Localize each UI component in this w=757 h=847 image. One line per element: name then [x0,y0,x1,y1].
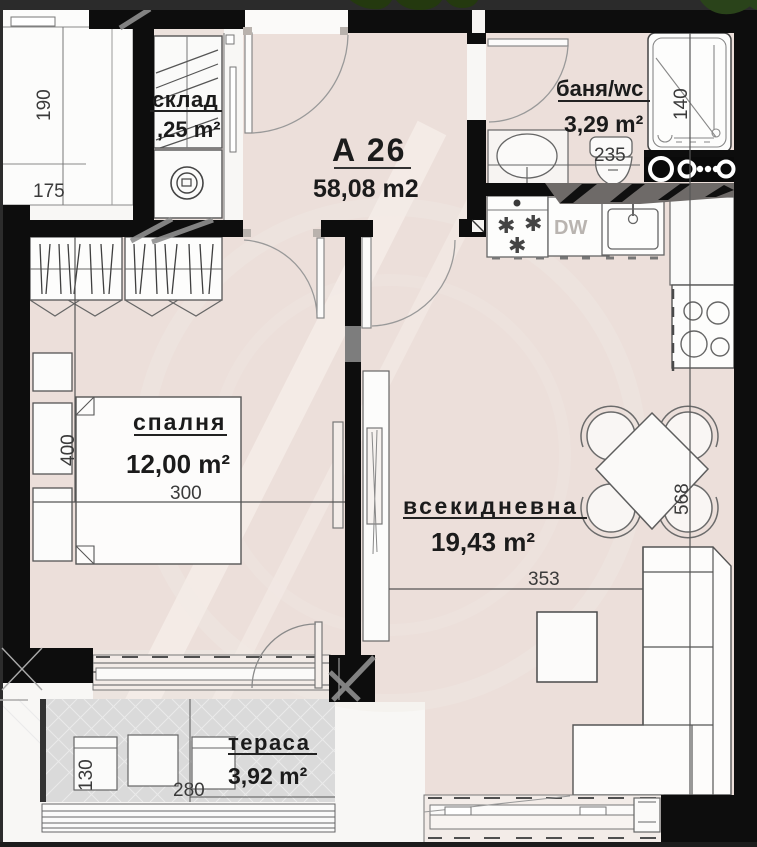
svg-text:3,92 m²: 3,92 m² [228,763,308,789]
svg-text:58,08 m2: 58,08 m2 [313,175,419,203]
svg-text:,25 m²: ,25 m² [157,117,221,142]
svg-text:баня/wc: баня/wc [556,76,643,101]
svg-text:склад: склад [152,87,218,112]
svg-text:235: 235 [594,145,626,166]
svg-text:175: 175 [33,181,65,202]
svg-text:тераса: тераса [228,730,310,755]
svg-text:3,29 m²: 3,29 m² [564,111,644,137]
svg-text:280: 280 [173,780,205,801]
svg-text:130: 130 [76,759,97,791]
svg-text:спалня: спалня [133,409,226,435]
svg-text:400: 400 [58,434,79,466]
svg-text:568: 568 [672,483,693,515]
svg-text:12,00 m²: 12,00 m² [126,449,230,479]
svg-text:19,43 m²: 19,43 m² [431,527,535,557]
svg-text:140: 140 [671,88,692,120]
svg-text:✱: ✱ [524,211,542,236]
svg-text:всекидневна: всекидневна [403,493,579,519]
svg-text:A 26: A 26 [332,132,406,168]
svg-text:190: 190 [34,89,55,121]
svg-text:353: 353 [528,569,560,590]
svg-text:DW: DW [554,217,587,239]
svg-text:300: 300 [170,483,202,504]
svg-text:✱: ✱ [508,233,526,258]
